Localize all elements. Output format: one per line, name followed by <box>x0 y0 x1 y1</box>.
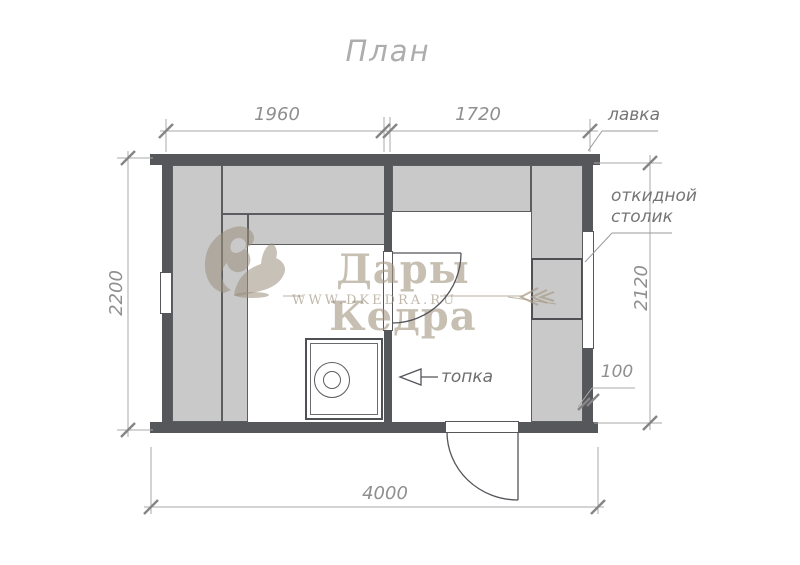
dimension-top-left: 1960 <box>237 104 317 125</box>
label-firebox: топка <box>441 367 493 387</box>
dimension-bottom-total: 4000 <box>345 483 425 504</box>
dimension-tick-marks <box>121 124 657 514</box>
label-bench: лавка <box>608 105 660 125</box>
left-arrow-icon <box>400 369 438 385</box>
dimension-wall-thickness: 100 <box>595 362 639 382</box>
dimension-top-right: 1720 <box>438 104 518 125</box>
page-title: План <box>328 34 448 68</box>
dimension-left-side: 2200 <box>106 243 126 343</box>
label-folding-table: откидной столик <box>611 186 697 229</box>
dimension-right-side: 2120 <box>631 238 651 338</box>
dimension-lines <box>117 117 662 514</box>
floor-plan-canvas: План Дары Кедр <box>0 0 800 565</box>
